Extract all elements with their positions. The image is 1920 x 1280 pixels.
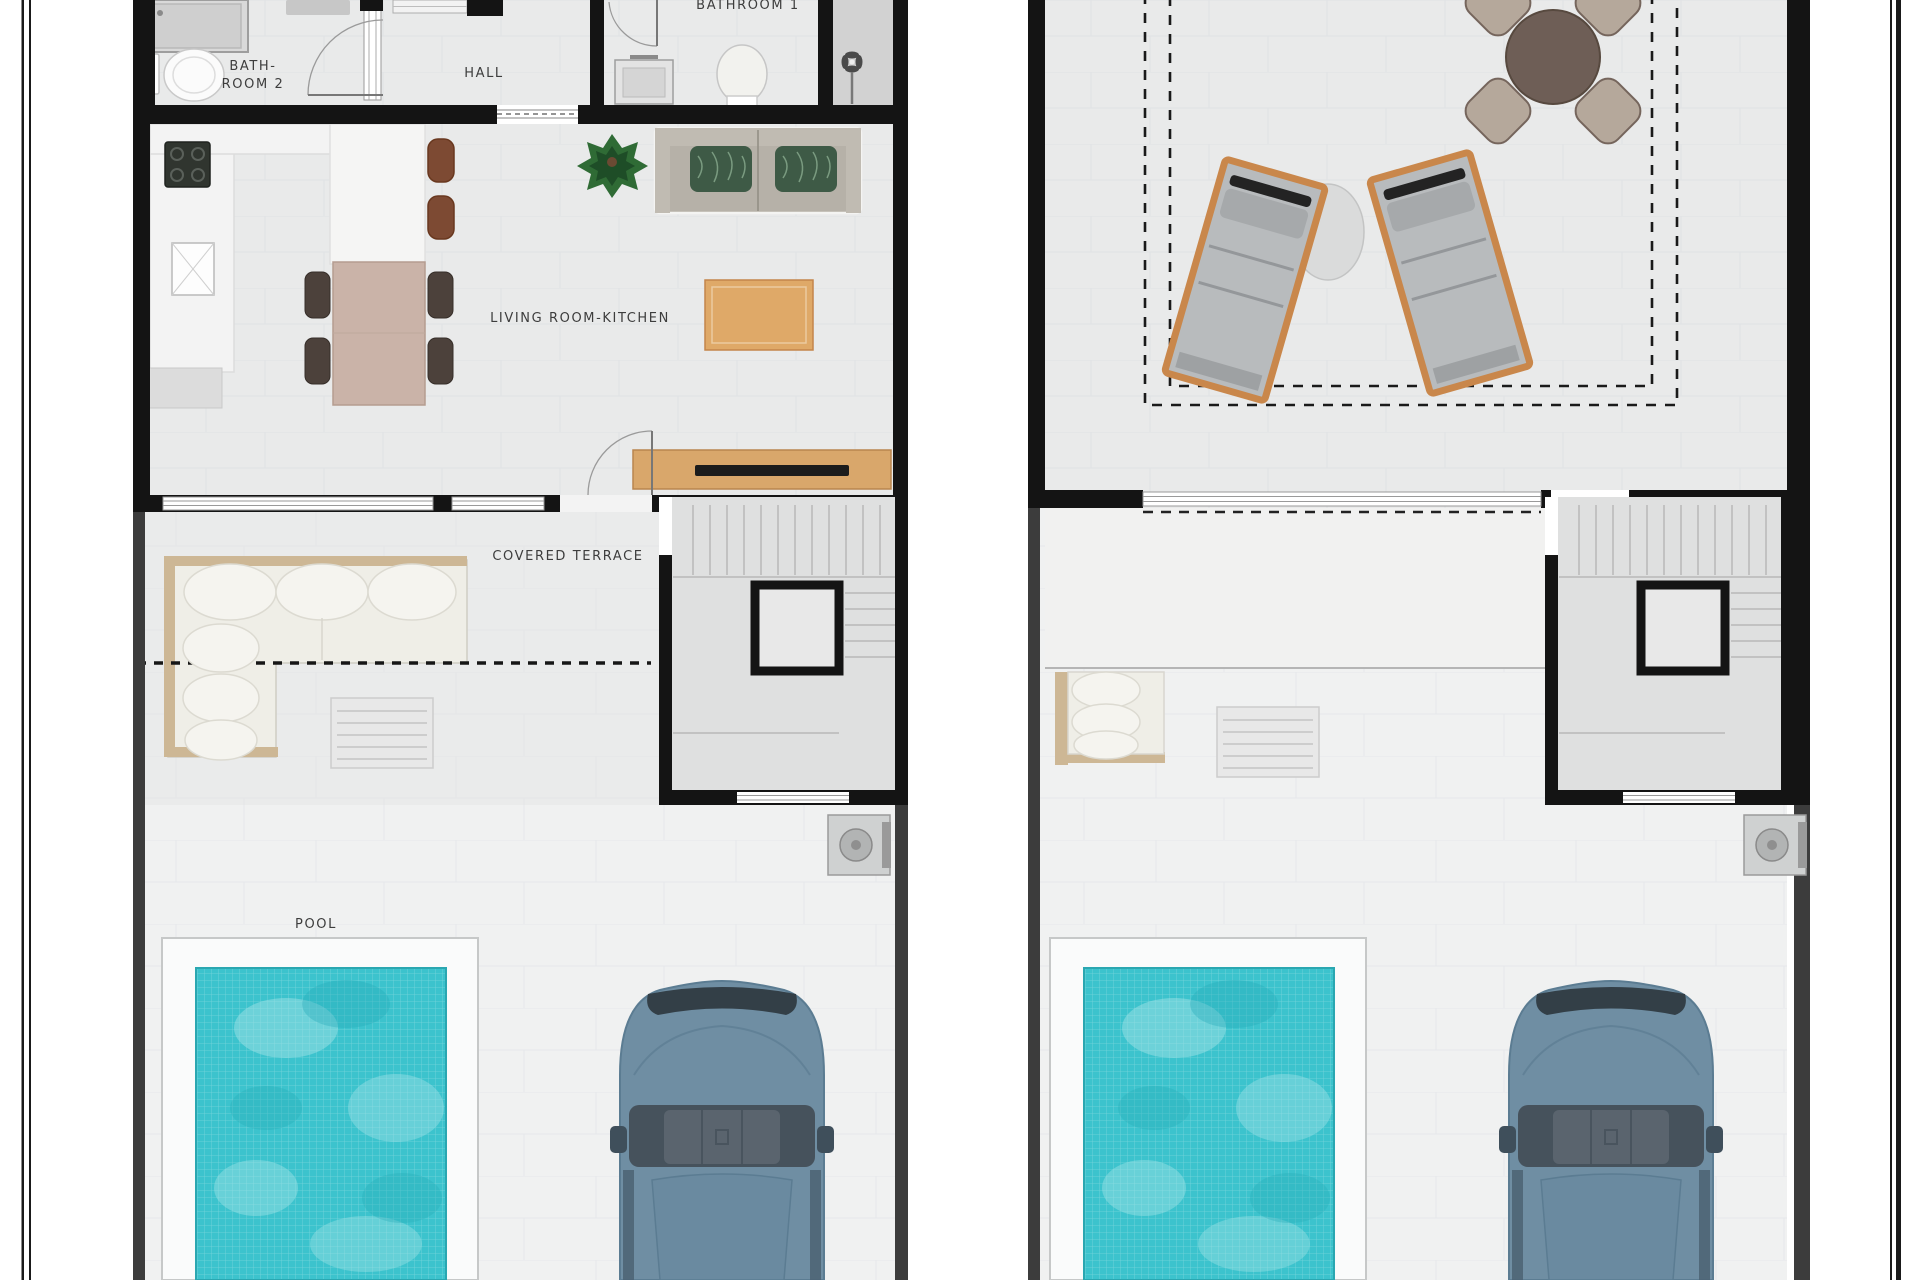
pool-icon [162,938,478,1280]
car-icon [610,981,834,1280]
label-bathroom1: BATHROOM 1 [696,0,800,13]
chair-icon [305,272,330,318]
round-table-icon [1506,10,1600,104]
floorplan-svg: BATH- ROOM 2 HALL BATHROOM 1 [0,0,1920,1280]
label-pool: POOL [295,917,337,932]
chair-icon [428,272,453,318]
car-icon [1499,981,1723,1280]
roof-slab [1045,508,1545,668]
stove-icon [165,142,210,187]
tv-sideboard-icon [633,450,891,489]
ac-unit-icon [1744,815,1807,875]
chair-icon [428,338,453,384]
sofa-remnant [1055,672,1165,765]
label-living-room-kitchen: LIVING ROOM-KITCHEN [490,311,670,326]
chair-icon [305,338,330,384]
pillow-icon [775,146,837,192]
slatted-table-icon [331,698,433,768]
slatted-table-icon [1217,707,1319,777]
outdoor-sofa-icon [183,624,259,760]
kitchen-island [330,124,425,264]
coffee-table-icon [705,280,813,350]
floorplan-sheet: BATH- ROOM 2 HALL BATHROOM 1 [0,0,1920,1280]
counter-end [148,368,222,408]
stool-icon [428,139,454,182]
ground-floor-plan: BATH- ROOM 2 HALL BATHROOM 1 [133,0,908,1280]
stairs-icon [659,497,908,805]
pillow-icon [690,146,752,192]
stairs-icon [1545,497,1794,805]
kitchen-sink-icon [172,243,214,295]
label-hall: HALL [464,66,504,81]
ac-unit-icon [828,815,891,875]
sink-icon [615,55,673,104]
label-bathroom2-line1: BATH- [229,59,276,74]
stool-icon [428,196,454,239]
label-bathroom2-line2: ROOM 2 [222,77,285,92]
bath-mat [286,0,350,15]
pool-icon [1050,938,1366,1280]
roof-terrace-plan [1028,0,1810,1280]
label-covered-terrace: COVERED TERRACE [492,549,643,564]
sofa-icon [655,128,861,213]
plant-icon [577,134,648,198]
